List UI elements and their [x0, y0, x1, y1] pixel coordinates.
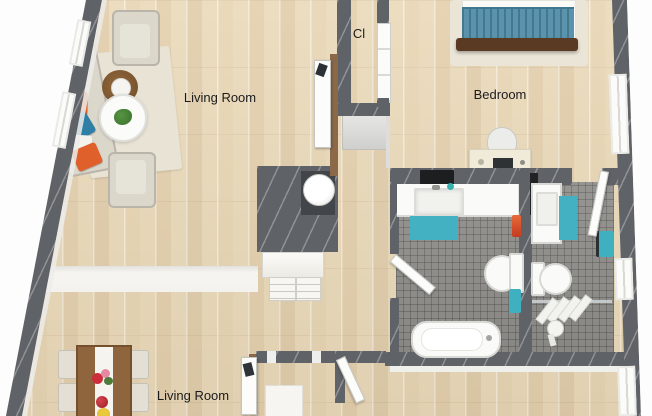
hall-wall-strip: [386, 114, 390, 168]
armchair-seat: [120, 24, 150, 58]
tub-drain: [486, 335, 492, 341]
room-label-bedroom: Bedroom: [445, 88, 555, 102]
drawer-unit: [269, 277, 296, 301]
armchair: [108, 152, 156, 208]
door-frame: [330, 54, 338, 176]
sink: [414, 188, 464, 216]
water-heater: [303, 174, 335, 206]
wall: [377, 0, 389, 24]
bathtub-basin: [421, 328, 483, 351]
desk-item: [520, 160, 525, 165]
wall: [377, 98, 389, 107]
window: [617, 366, 637, 416]
hall-cabinet: [342, 114, 390, 150]
sink: [536, 192, 558, 226]
room-label-closet: Cl: [344, 27, 374, 41]
floor-plan: Living Room Cl Bedroom Living Room: [0, 0, 652, 416]
room-label-living-room-top: Living Room: [160, 91, 280, 105]
bed-blanket: [462, 7, 574, 41]
room-label-living-room-bottom: Living Room: [133, 389, 253, 403]
desk-item: [478, 159, 484, 165]
door: [314, 60, 331, 148]
baseboard: [390, 366, 622, 372]
door-handle: [243, 362, 255, 377]
red-bowl: [96, 396, 108, 408]
armchair: [112, 10, 160, 66]
plant: [114, 109, 132, 125]
towel-teal: [509, 289, 521, 313]
toilet: [539, 263, 572, 295]
bath-mat: [410, 216, 458, 240]
flowers-yellow: [97, 408, 110, 416]
soap-dish: [447, 183, 454, 190]
towel-orange: [512, 215, 521, 237]
faucet: [432, 185, 440, 190]
laptop: [493, 158, 513, 168]
bathtub: [411, 321, 501, 358]
wall: [337, 0, 351, 116]
armchair-seat: [116, 160, 146, 194]
coffee-table: [99, 94, 147, 142]
door: [241, 357, 257, 415]
dining-table: [76, 345, 132, 416]
door-handle: [315, 63, 328, 77]
closet-door: [377, 23, 391, 103]
door-jamb: [267, 351, 276, 363]
kitchen-counter: [262, 252, 324, 278]
towel-teal: [596, 231, 614, 257]
bed-footboard: [456, 38, 578, 51]
drawer-unit: [296, 277, 321, 301]
room-divider: [28, 266, 258, 292]
white-furniture: [265, 385, 303, 416]
window: [609, 74, 630, 155]
door-jamb: [312, 351, 321, 363]
window: [614, 258, 633, 301]
toilet-tank: [509, 253, 524, 293]
bath-mat: [559, 196, 577, 240]
wall: [390, 298, 399, 354]
flowers-leaves: [104, 377, 113, 385]
